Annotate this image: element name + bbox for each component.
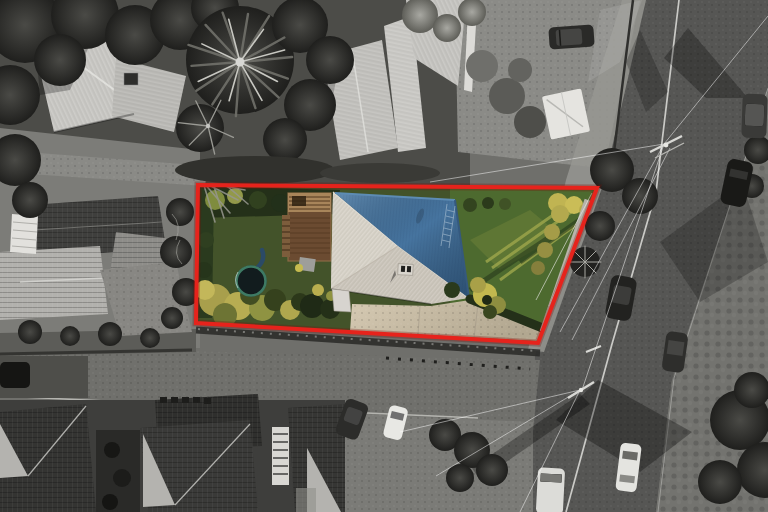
skylight-panels	[296, 488, 316, 512]
hedge-above-lot-2	[320, 163, 440, 183]
car-black-far-left	[0, 362, 30, 388]
van-white	[536, 467, 565, 512]
balcony-ladder	[272, 427, 289, 485]
spa-cover	[292, 196, 306, 206]
deck-stairs	[282, 215, 290, 257]
wooden-deck	[282, 193, 331, 272]
aerial-photo-stage	[0, 0, 768, 512]
car-right-top	[741, 94, 768, 139]
porch-roof	[332, 289, 351, 312]
car-suv-top	[548, 24, 594, 49]
flower-patch	[295, 264, 303, 272]
townhouse-roofs	[0, 394, 345, 512]
aerial-photo	[0, 0, 768, 512]
skylight	[124, 73, 138, 85]
bush	[444, 282, 460, 298]
hedge-above-lot	[175, 156, 335, 184]
flower-patch	[312, 284, 324, 296]
